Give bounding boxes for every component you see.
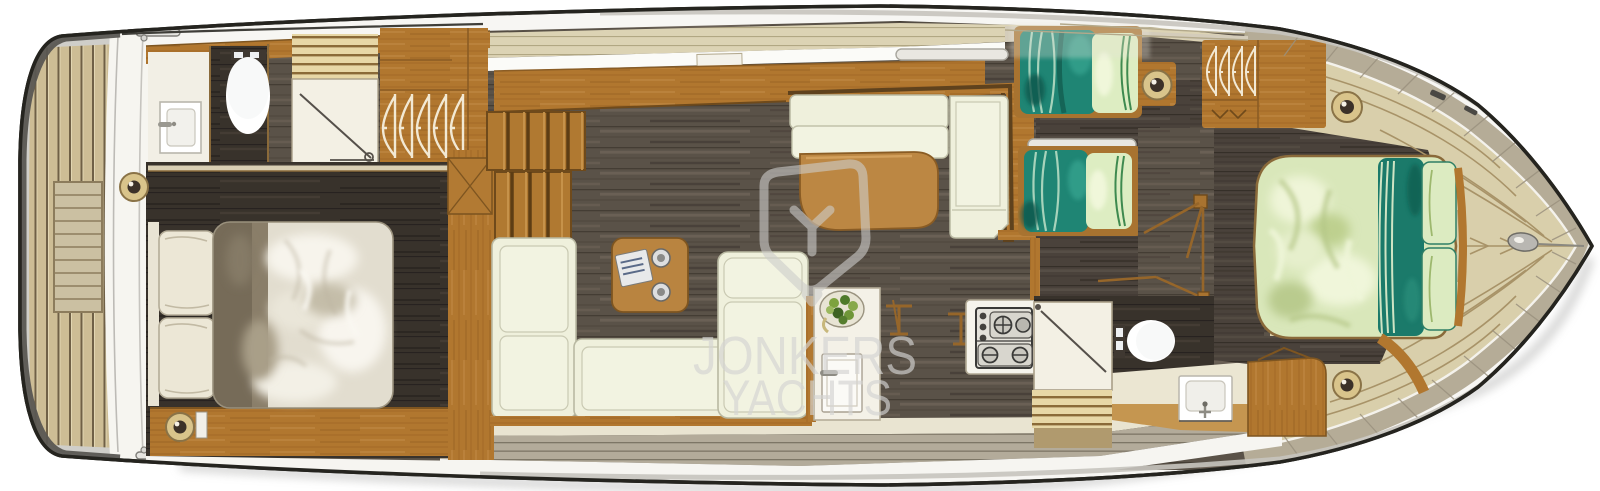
svg-text:YACHTS: YACHTS [722, 370, 892, 426]
